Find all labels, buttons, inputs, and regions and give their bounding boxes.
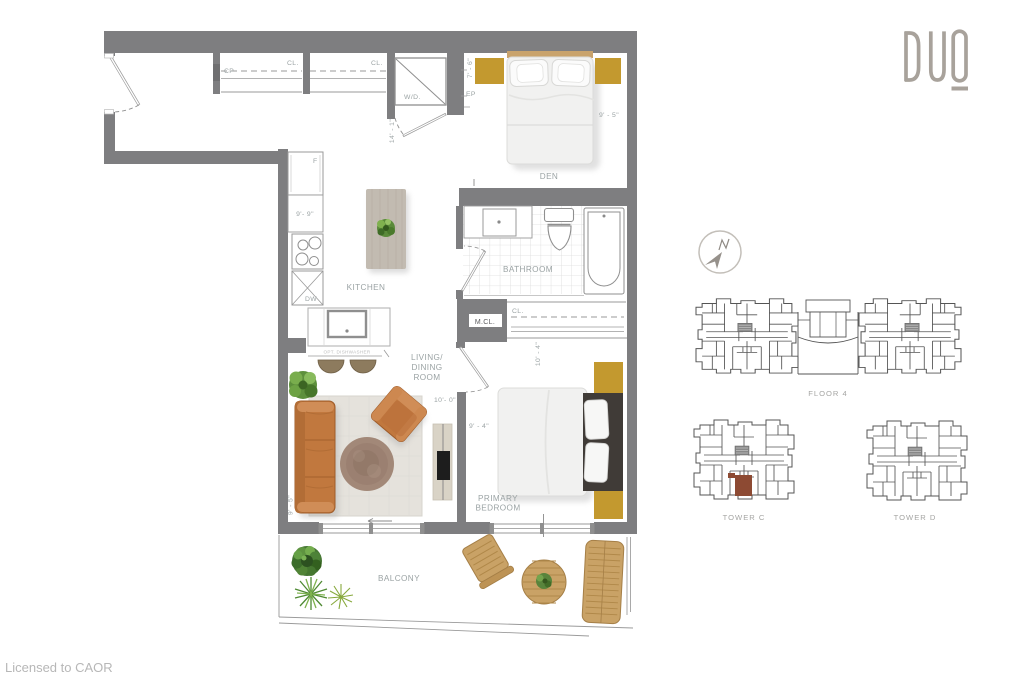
svg-text:BATHROOM: BATHROOM	[503, 265, 553, 274]
svg-text:9' - 5": 9' - 5"	[288, 495, 295, 515]
svg-text:CL.: CL.	[512, 308, 524, 315]
svg-text:DW: DW	[305, 296, 317, 303]
svg-text:10' - 4": 10' - 4"	[535, 342, 542, 366]
svg-text:OPT. DISHWASHER: OPT. DISHWASHER	[324, 350, 371, 355]
svg-text:CP: CP	[224, 68, 234, 75]
svg-text:LIVING/: LIVING/	[411, 353, 443, 362]
svg-text:BEDROOM: BEDROOM	[475, 504, 520, 513]
svg-text:FLOOR 4: FLOOR 4	[808, 389, 848, 398]
svg-text:KITCHEN: KITCHEN	[347, 283, 386, 292]
svg-text:9' - 4": 9' - 4"	[469, 423, 489, 430]
svg-text:10'- 0": 10'- 0"	[434, 397, 456, 404]
svg-text:ROOM: ROOM	[413, 373, 440, 382]
svg-text:TOWER C: TOWER C	[723, 513, 766, 522]
svg-text:EP: EP	[466, 91, 476, 98]
svg-text:Licensed to CAOR: Licensed to CAOR	[5, 660, 113, 675]
svg-text:14' - 1": 14' - 1"	[389, 119, 396, 143]
svg-text:7' - 6": 7' - 6"	[467, 58, 474, 78]
svg-text:9' - 5": 9' - 5"	[599, 112, 619, 119]
svg-text:F: F	[313, 158, 318, 165]
svg-text:CL.: CL.	[371, 60, 383, 67]
svg-text:DINING: DINING	[411, 363, 442, 372]
svg-text:9'- 9": 9'- 9"	[296, 211, 314, 218]
svg-text:BALCONY: BALCONY	[378, 574, 420, 583]
svg-text:CL.: CL.	[287, 60, 299, 67]
svg-text:W/D.: W/D.	[404, 94, 421, 101]
svg-text:TOWER D: TOWER D	[894, 513, 937, 522]
svg-text:M.CL.: M.CL.	[475, 319, 495, 326]
svg-text:DEN: DEN	[540, 172, 559, 181]
svg-text:PRIMARY: PRIMARY	[478, 494, 518, 503]
